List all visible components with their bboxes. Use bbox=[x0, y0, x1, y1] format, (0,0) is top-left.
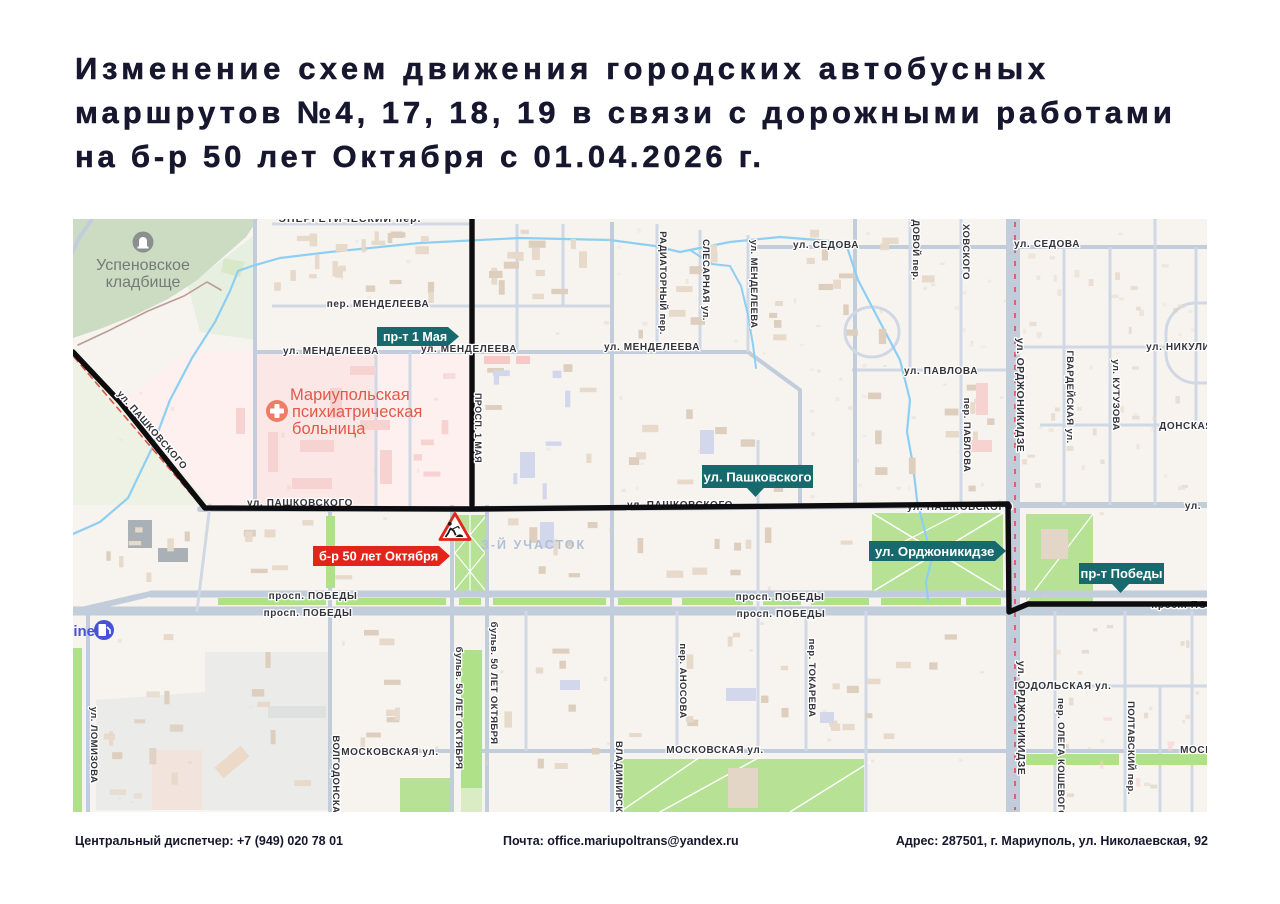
svg-text:ДОВОЙ пер.: ДОВОЙ пер. bbox=[910, 219, 922, 280]
svg-text:МОСК: МОСК bbox=[1180, 745, 1207, 756]
svg-text:ул. ОРДЖОНИКИДЗЕ: ул. ОРДЖОНИКИДЗЕ bbox=[1015, 661, 1027, 775]
svg-text:просп. ПОБЕДЫ: просп. ПОБЕДЫ bbox=[736, 592, 825, 603]
svg-text:ВОЛГОДОНСКАЯ: ВОЛГОДОНСКАЯ bbox=[330, 735, 341, 812]
svg-text:ул. ПАВЛОВА: ул. ПАВЛОВА bbox=[904, 366, 978, 377]
svg-text:ПОДОЛЬСКАЯ ул.: ПОДОЛЬСКАЯ ул. bbox=[1015, 681, 1112, 692]
svg-text:ул. ОРДЖОНИКИДЗЕ: ул. ОРДЖОНИКИДЗЕ bbox=[1014, 338, 1026, 452]
svg-text:пер. ТОКАРЕВА: пер. ТОКАРЕВА bbox=[806, 639, 817, 718]
svg-text:ХОВСКОГО: ХОВСКОГО bbox=[960, 224, 971, 280]
svg-text:Успеновскоекладбище: Успеновскоекладбище bbox=[96, 257, 190, 291]
svg-text:ул. НИКУЛИНА: ул. НИКУЛИНА bbox=[1146, 342, 1207, 353]
svg-text:ЭНЕРГЕТИЧЕСКИЙ пер.: ЭНЕРГЕТИЧЕСКИЙ пер. bbox=[279, 219, 422, 225]
svg-text:ул. СЕДОВА: ул. СЕДОВА bbox=[793, 240, 859, 251]
svg-text:ул. МЕНДЕЛЕЕВА: ул. МЕНДЕЛЕЕВА bbox=[283, 346, 379, 357]
svg-text:З-Й УЧАСТОК: З-Й УЧАСТОК bbox=[481, 537, 586, 552]
svg-text:пер. АНОСОВА: пер. АНОСОВА bbox=[677, 643, 688, 718]
svg-text:ine: ine bbox=[73, 623, 95, 640]
svg-text:ГВАРДЕЙСКАЯ ул.: ГВАРДЕЙСКАЯ ул. bbox=[1064, 350, 1076, 443]
svg-text:пер. ОЛЕГА КОШЕВОГО: пер. ОЛЕГА КОШЕВОГО bbox=[1055, 698, 1066, 812]
svg-text:ул. СЕДОВА: ул. СЕДОВА bbox=[1014, 239, 1080, 250]
svg-text:ул. МЕНДЕЛЕЕВА: ул. МЕНДЕЛЕЕВА bbox=[604, 342, 700, 353]
svg-text:ул. ЛОМИЗОВА: ул. ЛОМИЗОВА bbox=[88, 707, 99, 784]
svg-text:ПОЛТАВСКИЙ пер.: ПОЛТАВСКИЙ пер. bbox=[1125, 701, 1137, 795]
svg-text:ул.: ул. bbox=[1185, 501, 1201, 512]
svg-text:МОСКОВСКАЯ ул.: МОСКОВСКАЯ ул. bbox=[666, 745, 764, 756]
svg-text:ДОНСКАЯ ул.: ДОНСКАЯ ул. bbox=[1159, 421, 1207, 432]
svg-text:бульв. 50 ЛЕТ ОКТЯБРЯ: бульв. 50 ЛЕТ ОКТЯБРЯ bbox=[453, 647, 464, 770]
svg-text:просп. ПОБЕДЫ: просп. ПОБЕДЫ bbox=[737, 609, 826, 620]
svg-text:пер. ПАВЛОВА: пер. ПАВЛОВА bbox=[961, 398, 972, 473]
svg-text:ул. Орджоникидзе: ул. Орджоникидзе bbox=[875, 544, 994, 559]
svg-text:ул. МЕНДЕЛЕЕВА: ул. МЕНДЕЛЕЕВА bbox=[748, 240, 759, 329]
svg-text:просп. ПОБЕДЫ: просп. ПОБЕДЫ bbox=[269, 591, 358, 602]
svg-text:ул. КУТУЗОВА: ул. КУТУЗОВА bbox=[1110, 359, 1121, 430]
svg-text:просп. ПОБЕДЫ: просп. ПОБЕДЫ bbox=[264, 608, 353, 619]
svg-text:пр-т Победы: пр-т Победы bbox=[1081, 566, 1163, 581]
svg-text:б-р 50 лет Октября: б-р 50 лет Октября bbox=[319, 549, 438, 564]
svg-text:МОСКОВСКАЯ ул.: МОСКОВСКАЯ ул. bbox=[341, 747, 439, 758]
svg-text:бульв. 50 ЛЕТ ОКТЯБРЯ: бульв. 50 ЛЕТ ОКТЯБРЯ bbox=[488, 622, 499, 745]
svg-text:ПРОСП. 1 МАЯ: ПРОСП. 1 МАЯ bbox=[473, 393, 483, 463]
svg-text:ВЛАДИМИРСКАЯ: ВЛАДИМИРСКАЯ bbox=[613, 741, 624, 812]
svg-text:РАДИАТОРНЫЙ пер.: РАДИАТОРНЫЙ пер. bbox=[657, 231, 669, 334]
svg-text:пер. МЕНДЕЛЕЕВА: пер. МЕНДЕЛЕЕВА bbox=[327, 299, 430, 310]
svg-text:СЛЕСАРНАЯ ул.: СЛЕСАРНАЯ ул. bbox=[700, 239, 711, 321]
svg-text:пр-т 1 Мая: пр-т 1 Мая bbox=[383, 330, 447, 344]
svg-text:ул. Пашковского: ул. Пашковского bbox=[703, 469, 811, 484]
